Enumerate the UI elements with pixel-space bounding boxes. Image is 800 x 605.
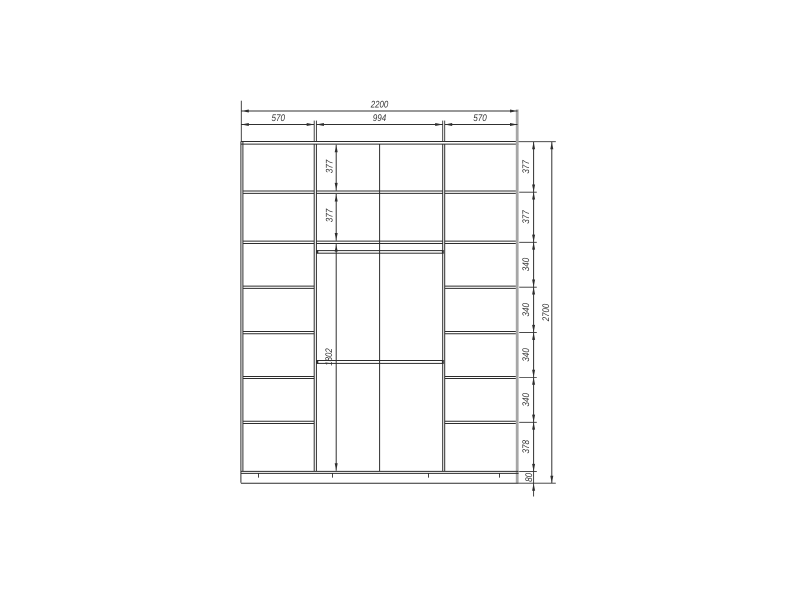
svg-text:377: 377 — [324, 208, 335, 222]
svg-text:340: 340 — [521, 392, 532, 406]
svg-text:340: 340 — [521, 257, 532, 271]
svg-text:340: 340 — [521, 348, 532, 362]
svg-text:377: 377 — [324, 159, 335, 173]
svg-text:340: 340 — [521, 302, 532, 316]
svg-text:378: 378 — [521, 439, 532, 453]
svg-text:377: 377 — [521, 210, 532, 224]
svg-text:2200: 2200 — [370, 99, 389, 110]
svg-text:994: 994 — [373, 113, 387, 124]
svg-text:570: 570 — [272, 113, 286, 124]
svg-text:80: 80 — [524, 472, 535, 482]
svg-text:377: 377 — [521, 160, 532, 174]
svg-text:2700: 2700 — [541, 303, 552, 322]
svg-text:1802: 1802 — [324, 348, 335, 366]
svg-text:570: 570 — [473, 113, 487, 124]
